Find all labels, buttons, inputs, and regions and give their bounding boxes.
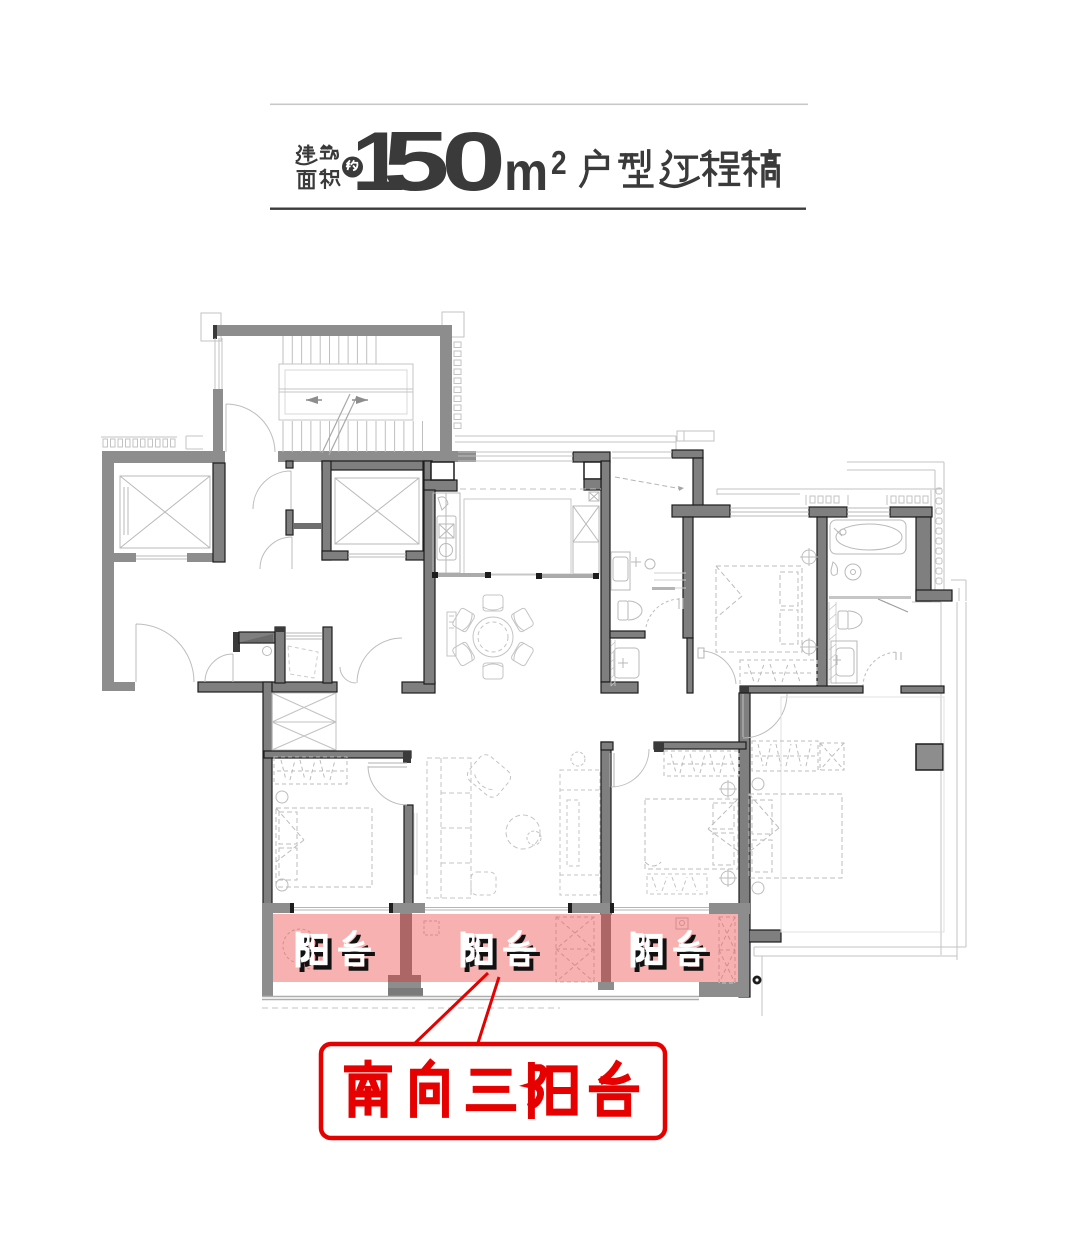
svg-text:m: m — [504, 141, 548, 201]
svg-text:0: 0 — [441, 114, 506, 208]
svg-text:2: 2 — [551, 145, 567, 182]
svg-text:5: 5 — [383, 114, 450, 208]
